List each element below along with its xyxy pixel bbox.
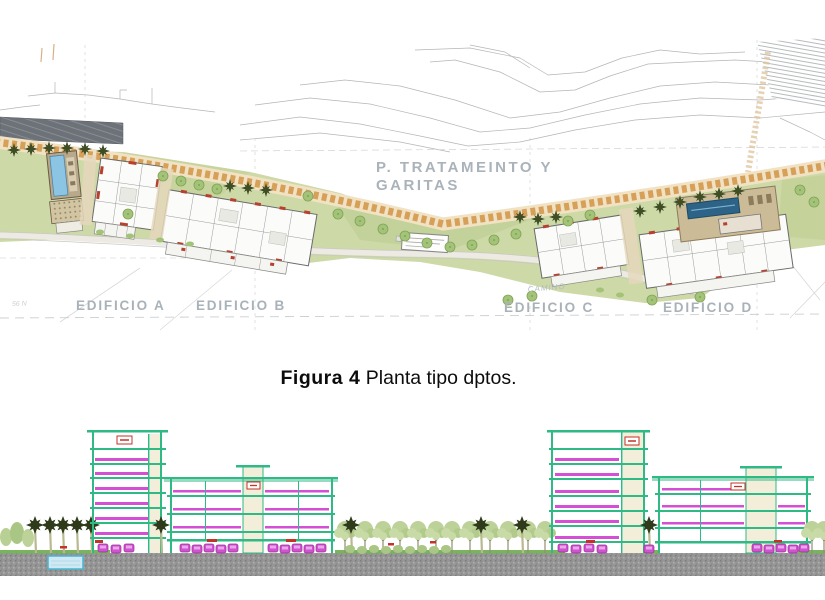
building-label-b: EDIFICIO B [196,298,286,313]
elevation-pool [48,556,83,569]
site-plan-drawing: P. TRATAMEINTO Y GARITAS EDIFICIO A EDIF… [0,0,825,345]
contour-lines [0,45,825,152]
elevation-building-a [87,430,168,553]
ground-gravel [0,553,825,576]
figure-caption: Figura 4 Planta tipo dptos. [0,367,811,390]
road-label-camino: CAMINO [527,282,566,294]
figure-caption-text: Planta tipo dptos. [366,367,517,389]
treatment-area-label-line2: GARITAS [376,177,460,194]
figure-caption-number: Figura 4 [281,367,361,389]
elevation-drawing [0,410,825,600]
edge-note: 56 N [12,300,28,308]
building-label-c: EDIFICIO C [504,300,594,315]
elevation-building-b [164,465,338,553]
survey-marks [41,44,54,62]
building-label-a: EDIFICIO A [76,298,166,313]
treatment-area-label-line1: P. TRATAMEINTO Y [376,159,553,176]
elevation-building-d [652,466,814,553]
left-vegetation [0,514,102,553]
document-page: P. TRATAMEINTO Y GARITAS EDIFICIO A EDIF… [0,0,825,600]
elevation-building-c [547,430,650,553]
building-label-d: EDIFICIO D [663,300,753,315]
